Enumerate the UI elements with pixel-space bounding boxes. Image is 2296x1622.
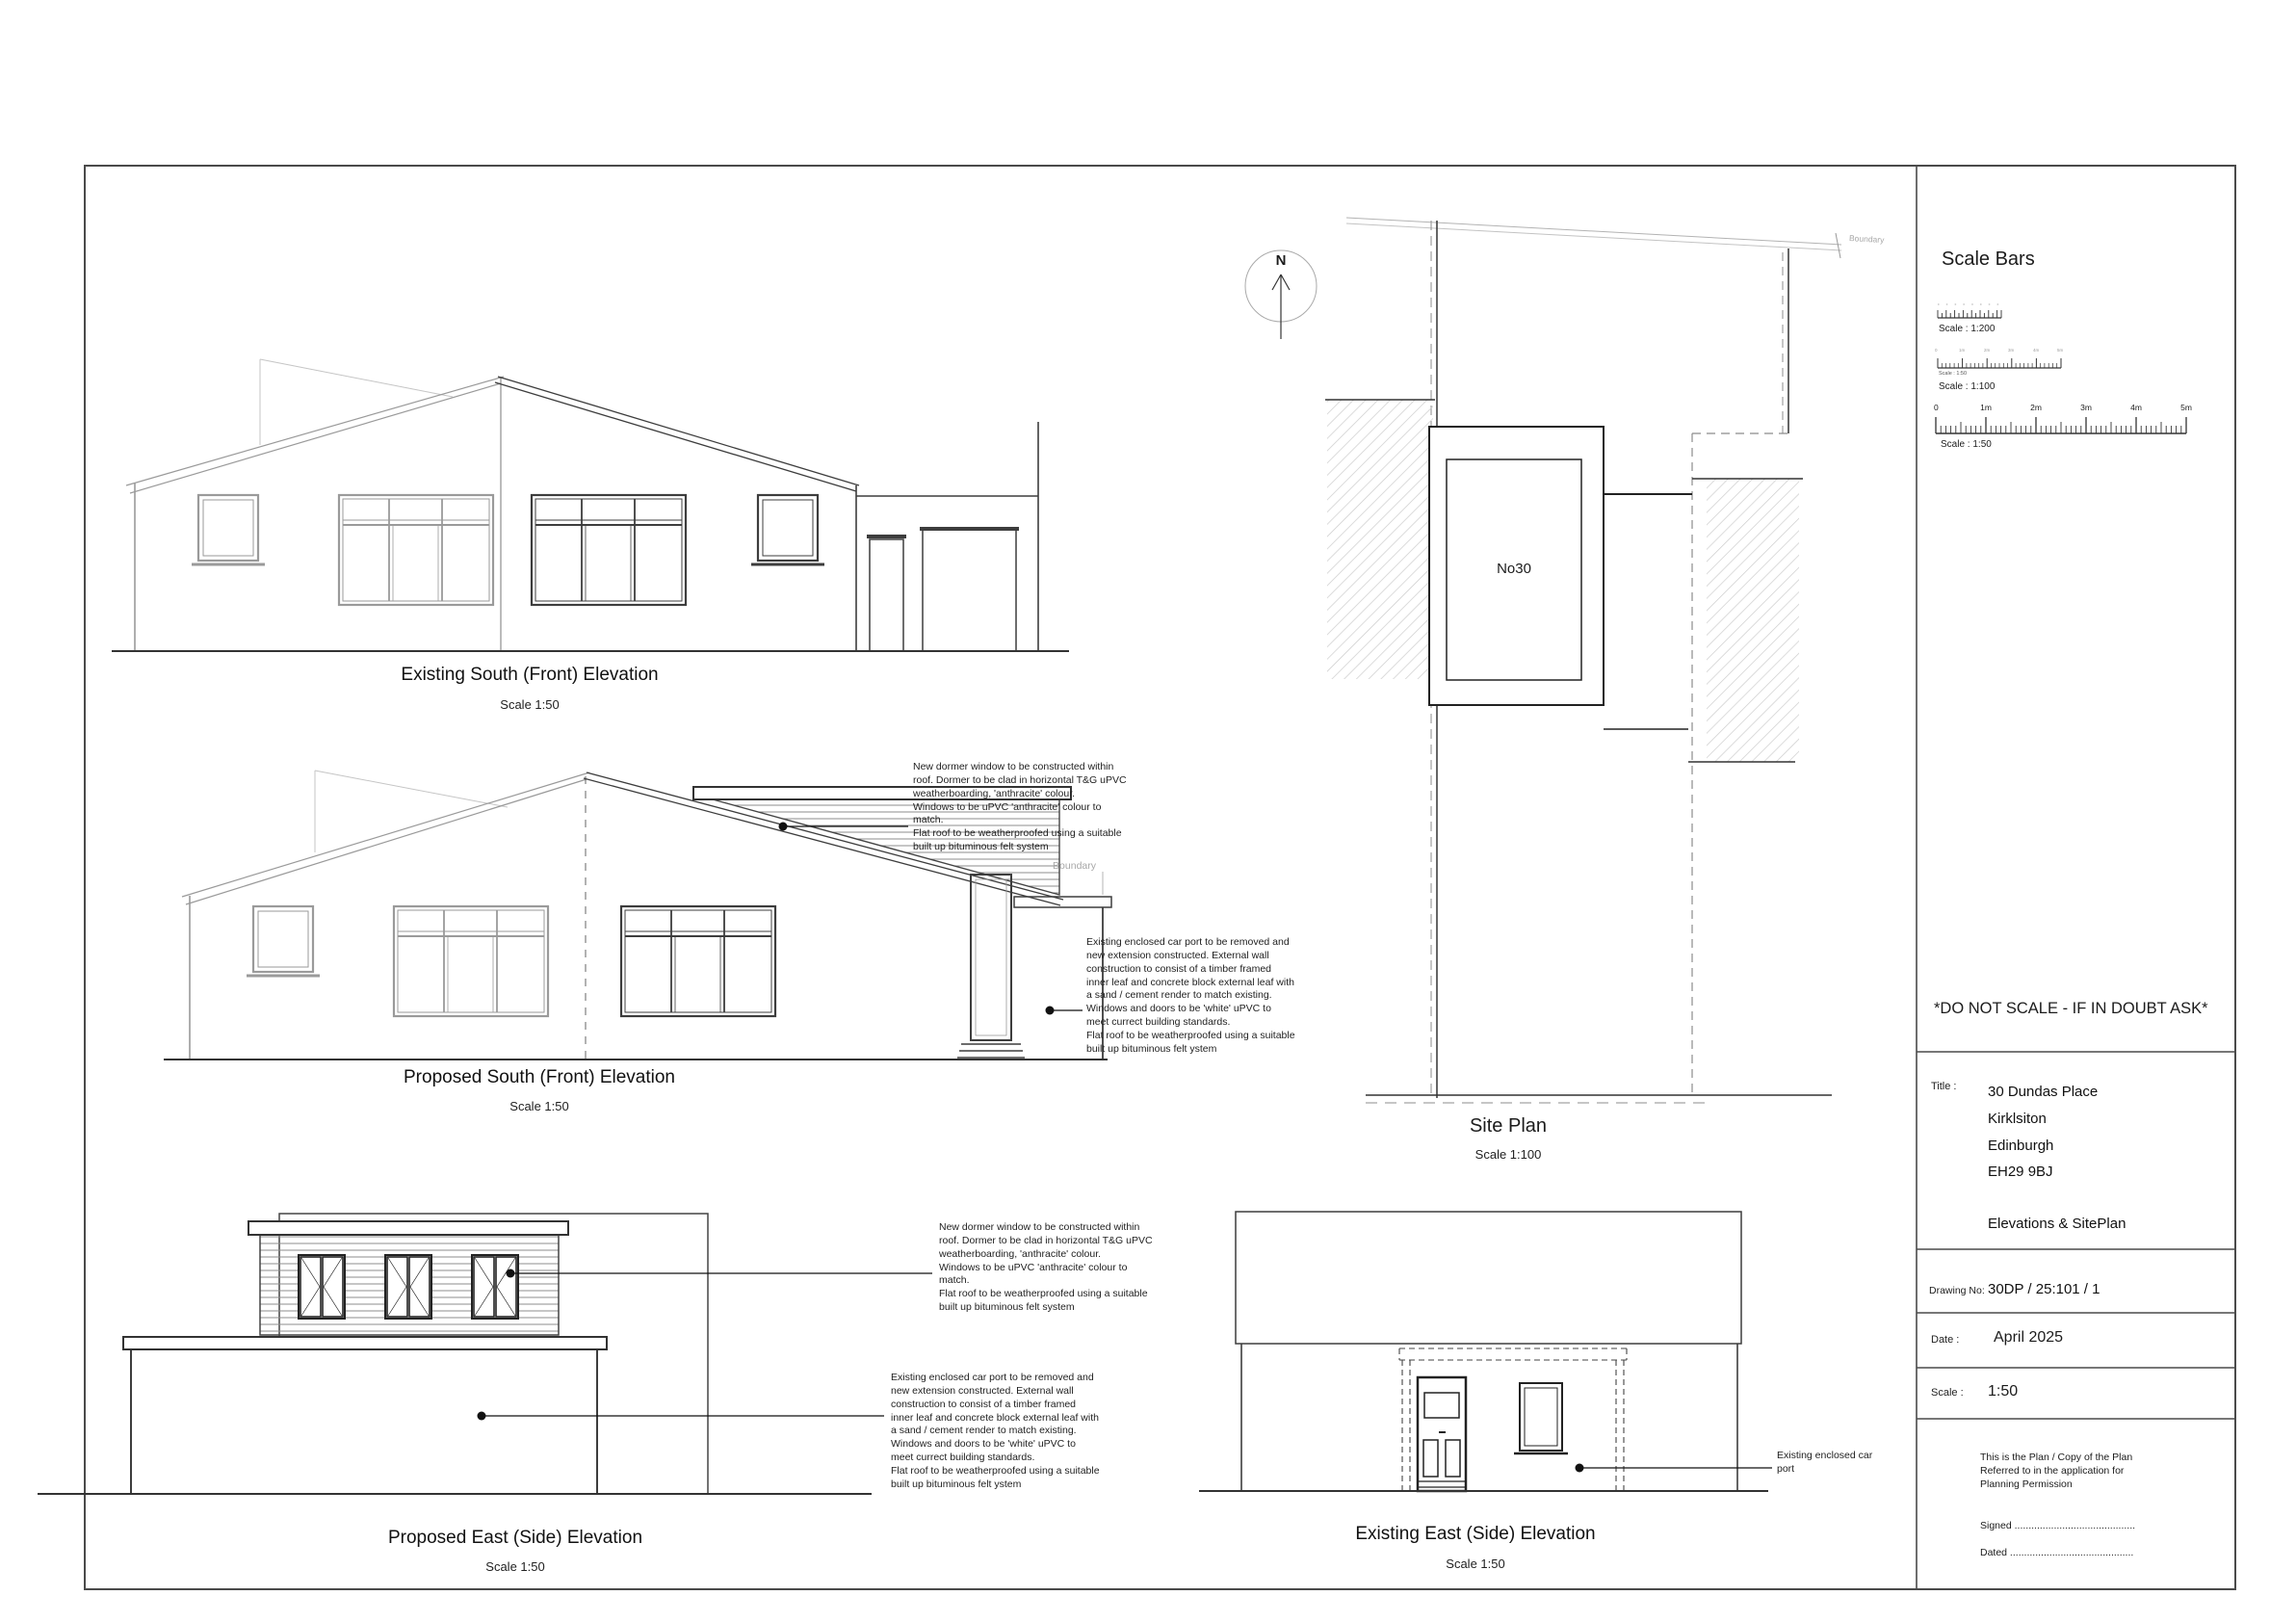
scale-bar-50 <box>1936 417 2186 433</box>
scale-100-sub-label: Scale : 1:50 <box>1939 371 1967 377</box>
scale-bar-100 <box>1938 358 2061 368</box>
existing-east-elevation-drawing <box>1199 1212 1768 1491</box>
proposed-east-dormer-note: New dormer window to be constructed with… <box>939 1221 1185 1315</box>
scale-100-tick-1: 1m <box>1959 348 1965 353</box>
proposed-south-extension-note: Existing enclosed car port to be removed… <box>1086 936 1327 1057</box>
title-label: Title : <box>1931 1081 1957 1092</box>
drawing-title: Elevations & SitePlan <box>1988 1216 2126 1232</box>
do-not-scale-warning: *DO NOT SCALE - IF IN DOUBT ASK* <box>1934 1000 2208 1018</box>
site-plan-scale: Scale 1:100 <box>1475 1147 1542 1162</box>
site-plan-drawing <box>1325 218 1841 1103</box>
scale-100-tick-2: 2m <box>1984 348 1990 353</box>
proposed-south-title: Proposed South (Front) Elevation <box>404 1067 675 1088</box>
date-label: Date : <box>1931 1334 1959 1346</box>
scale-50-tick-0: 0 <box>1934 403 1939 412</box>
site-boundary-label: Boundary <box>1849 233 1885 245</box>
scale-100-tick-0: 0 <box>1935 348 1938 353</box>
scale-100-tick-4: 4m <box>2033 348 2039 353</box>
existing-east-scale: Scale 1:50 <box>1446 1557 1504 1571</box>
existing-east-title: Existing East (Side) Elevation <box>1355 1524 1595 1545</box>
scale-50-tick-1: 1m <box>1980 403 1992 412</box>
scale-value: 1:50 <box>1988 1383 2018 1400</box>
proposed-east-elevation-drawing <box>38 1214 872 1494</box>
scale-100-tick-5: 5m <box>2057 348 2063 353</box>
existing-south-elevation-drawing <box>112 359 1069 651</box>
drawing-sheet: Scale Bars Scale : 1:200 0 1m 2m 3m 4m 5… <box>0 0 2296 1622</box>
scale-100-label: Scale : 1:100 <box>1939 381 1995 392</box>
scale-50-tick-5: 5m <box>2180 403 2192 412</box>
proposed-east-title: Proposed East (Side) Elevation <box>388 1528 642 1549</box>
scale-bars-heading: Scale Bars <box>1942 249 2035 271</box>
drawing-no-label: Drawing No: <box>1929 1285 1985 1296</box>
car-port-label: Existing enclosed car port <box>1777 1450 1941 1477</box>
scale-200-label: Scale : 1:200 <box>1939 324 1995 334</box>
existing-south-scale: Scale 1:50 <box>500 697 559 712</box>
north-label: N <box>1276 252 1287 269</box>
scale-50-tick-2: 2m <box>2030 403 2042 412</box>
signed-line: Signed .................................… <box>1980 1520 2135 1531</box>
proposed-south-boundary-label: Boundary <box>1021 860 1096 872</box>
existing-south-title: Existing South (Front) Elevation <box>401 665 658 686</box>
scale-100-tick-3: 3m <box>2008 348 2014 353</box>
scale-bar-200 <box>1938 304 2001 318</box>
site-plan-title: Site Plan <box>1470 1115 1547 1138</box>
project-address: 30 Dundas Place Kirklsiton Edinburgh EH2… <box>1988 1079 2098 1186</box>
house-number-label: No30 <box>1497 561 1531 577</box>
proposed-east-scale: Scale 1:50 <box>485 1559 544 1574</box>
scale-50-label: Scale : 1:50 <box>1941 439 1992 450</box>
planning-permission-note: This is the Plan / Copy of the Plan Refe… <box>1980 1451 2132 1492</box>
scale-label: Scale : <box>1931 1387 1964 1399</box>
date-value: April 2025 <box>1994 1329 2063 1347</box>
scale-50-tick-3: 3m <box>2080 403 2092 412</box>
drawing-no-value: 30DP / 25:101 / 1 <box>1988 1281 2100 1297</box>
proposed-south-scale: Scale 1:50 <box>509 1099 568 1113</box>
dated-line: Dated ..................................… <box>1980 1547 2133 1558</box>
scale-50-tick-4: 4m <box>2130 403 2142 412</box>
proposed-east-extension-note: Existing enclosed car port to be removed… <box>891 1372 1132 1492</box>
proposed-south-dormer-note: New dormer window to be constructed with… <box>913 761 1159 854</box>
